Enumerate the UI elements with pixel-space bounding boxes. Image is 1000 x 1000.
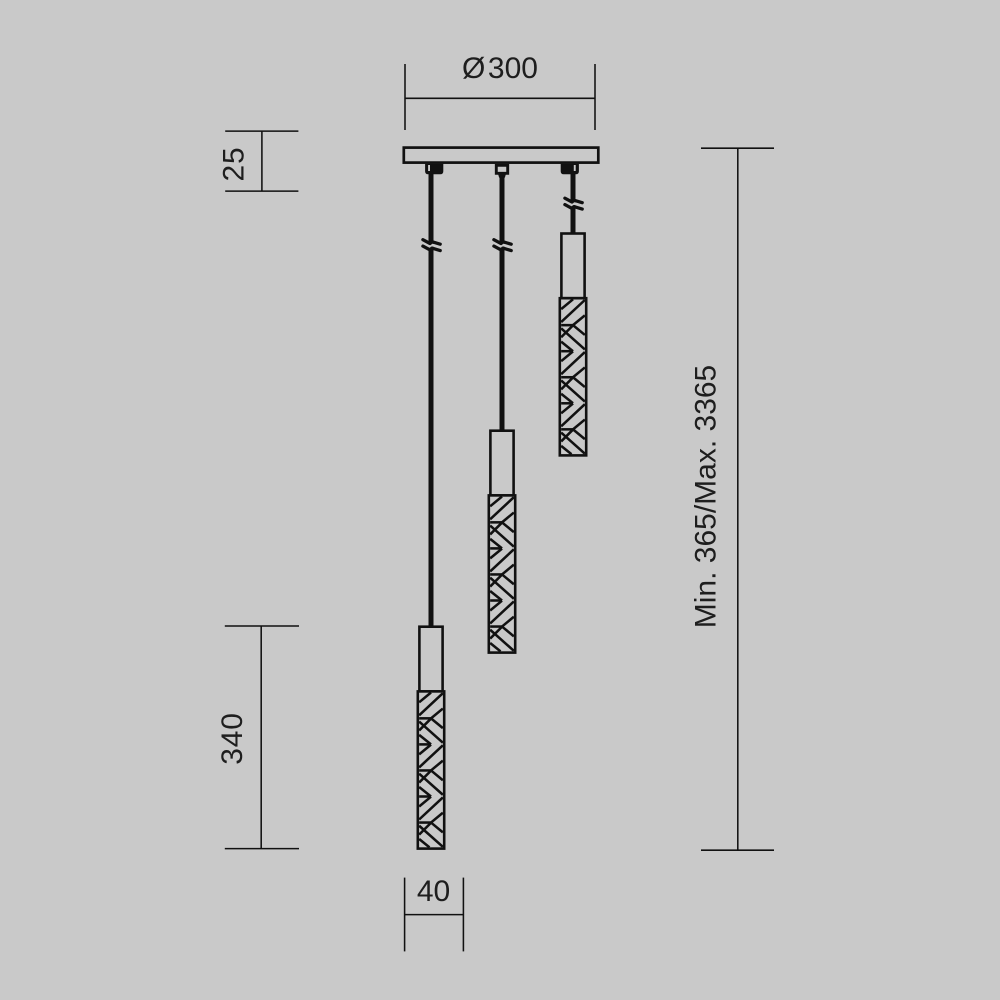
svg-text:Ø 300: Ø 300 <box>462 52 538 85</box>
svg-text:40: 40 <box>417 875 450 908</box>
svg-text:Min. 365/Max. 3365: Min. 365/Max. 3365 <box>690 365 723 628</box>
svg-text:340: 340 <box>216 712 249 764</box>
svg-text:25: 25 <box>217 147 250 182</box>
